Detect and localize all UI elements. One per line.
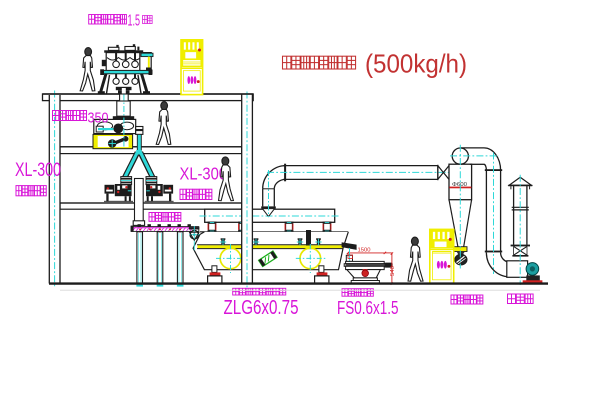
- svg-text:XL-300: XL-300: [180, 164, 228, 184]
- svg-text:FS0.6x1.5: FS0.6x1.5: [337, 298, 399, 318]
- svg-text:350: 350: [88, 110, 109, 127]
- svg-text:ZLG6x0.75: ZLG6x0.75: [224, 297, 299, 319]
- svg-text:(500kg/h): (500kg/h): [365, 49, 467, 79]
- svg-text:540: 540: [390, 266, 396, 276]
- svg-text:1500: 1500: [358, 248, 371, 254]
- svg-text:XL-300: XL-300: [15, 160, 61, 181]
- svg-text:1.5: 1.5: [128, 13, 141, 30]
